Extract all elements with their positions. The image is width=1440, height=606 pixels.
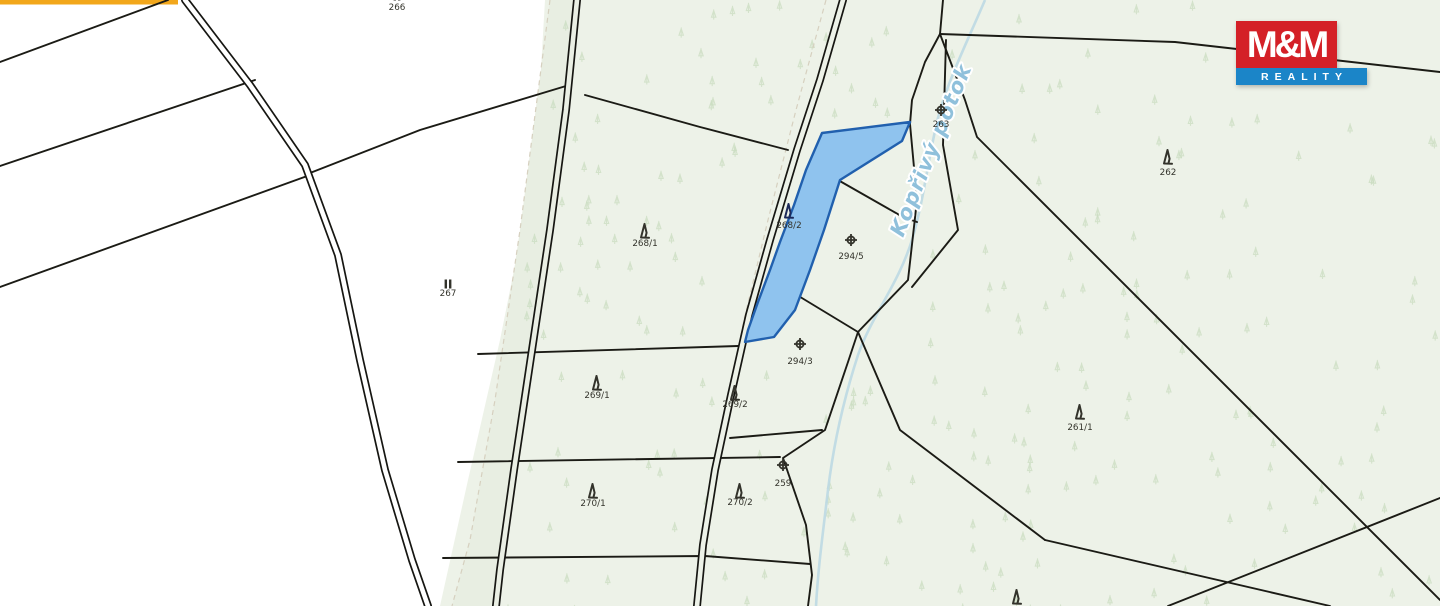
- logo-reality-box: REALITY: [1236, 68, 1367, 85]
- parcel-label: 261/1: [1067, 423, 1092, 433]
- cadastral-map-svg[interactable]: Kopřivý potok 266267268/1268/2269/1269/2…: [0, 0, 1440, 606]
- logo-mm-box: M&M: [1236, 21, 1337, 68]
- parcel-label: 270/1: [580, 499, 605, 509]
- parcel-label: 269/2: [722, 400, 747, 410]
- parcel-label: 294/5: [838, 252, 863, 262]
- parcel-label: 259: [775, 479, 792, 489]
- parcel-label: 268/1: [632, 239, 657, 249]
- cadastral-map[interactable]: Kopřivý potok 266267268/1268/2269/1269/2…: [0, 0, 1440, 606]
- parcel-label: 266: [389, 3, 406, 13]
- parcel-label: 268/2: [776, 221, 801, 231]
- agency-logo: M&M REALITY: [1236, 21, 1367, 85]
- parcel-label: 263: [933, 120, 950, 130]
- parcel-label: 262: [1160, 168, 1177, 178]
- parcel-label: 294/3: [787, 357, 812, 367]
- green-area: [440, 0, 1440, 606]
- yellow-road: [0, 0, 178, 5]
- parcel-label: 269/1: [584, 391, 609, 401]
- parcel-label: 267: [440, 289, 457, 299]
- parcel-label: 270/2: [727, 498, 752, 508]
